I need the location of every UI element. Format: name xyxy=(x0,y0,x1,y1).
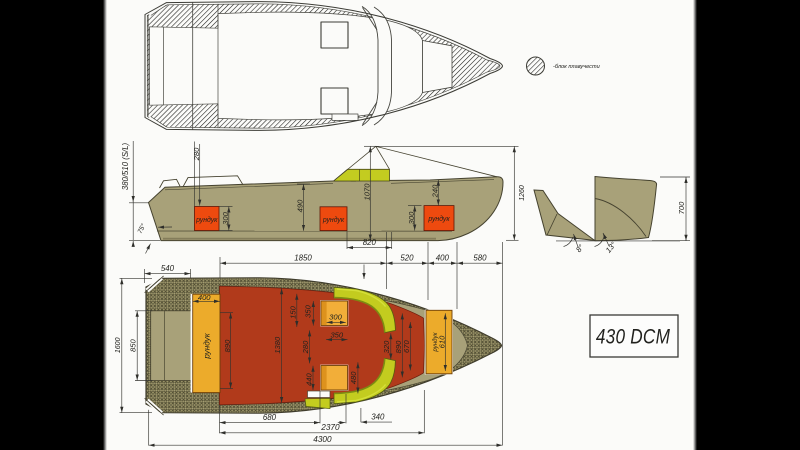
svg-text:рундук: рундук xyxy=(427,215,450,223)
svg-text:490: 490 xyxy=(296,199,305,212)
svg-text:320: 320 xyxy=(382,340,391,353)
svg-text:350: 350 xyxy=(304,304,313,317)
svg-text:380/510 (S/L): 380/510 (S/L) xyxy=(121,142,130,190)
svg-text:240: 240 xyxy=(431,184,440,198)
svg-text:440: 440 xyxy=(304,372,313,385)
svg-text:850: 850 xyxy=(128,338,137,351)
svg-text:400: 400 xyxy=(436,253,450,262)
svg-text:300: 300 xyxy=(407,211,416,224)
svg-text:340: 340 xyxy=(371,412,385,421)
svg-text:540: 540 xyxy=(161,264,175,273)
svg-text:520: 520 xyxy=(400,253,414,262)
svg-text:670: 670 xyxy=(402,339,411,352)
svg-text:-блок плавучести: -блок плавучести xyxy=(553,64,600,70)
svg-text:1380: 1380 xyxy=(273,336,282,354)
svg-text:1600: 1600 xyxy=(115,337,122,353)
svg-text:1850: 1850 xyxy=(294,253,312,262)
svg-text:2370: 2370 xyxy=(320,423,340,432)
svg-text:300: 300 xyxy=(221,211,230,224)
svg-text:280: 280 xyxy=(301,340,310,354)
svg-text:430 DCM: 430 DCM xyxy=(596,325,671,349)
svg-text:680: 680 xyxy=(263,413,277,422)
svg-text:4300: 4300 xyxy=(313,435,332,444)
svg-text:400: 400 xyxy=(198,293,211,302)
svg-text:610: 610 xyxy=(437,335,446,348)
svg-text:480: 480 xyxy=(349,371,358,384)
svg-text:рундук: рундук xyxy=(322,216,345,224)
svg-text:1260: 1260 xyxy=(519,185,526,201)
svg-text:1070: 1070 xyxy=(363,183,372,201)
svg-text:280: 280 xyxy=(192,147,201,161)
svg-text:рундук: рундук xyxy=(203,332,212,359)
svg-text:рундук: рундук xyxy=(195,216,218,224)
svg-text:580: 580 xyxy=(473,253,487,262)
svg-text:350: 350 xyxy=(330,330,343,339)
svg-text:300: 300 xyxy=(329,312,342,321)
svg-text:820: 820 xyxy=(363,238,377,247)
svg-text:890: 890 xyxy=(223,339,232,352)
svg-text:150: 150 xyxy=(288,305,297,318)
svg-text:700: 700 xyxy=(677,201,686,214)
